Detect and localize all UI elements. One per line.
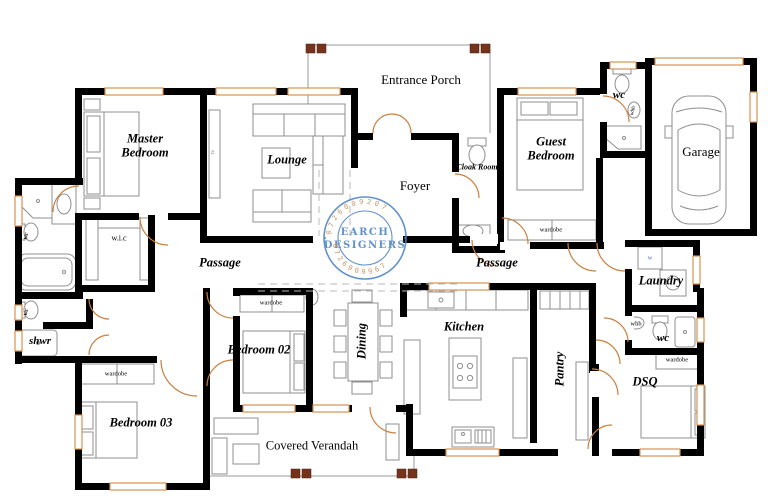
guest-wc-fixtures (604, 66, 641, 149)
stamp-dot-left: • (324, 234, 327, 243)
stamp-line1: EARCH (341, 227, 390, 238)
bedroom03-furniture (78, 364, 154, 458)
verandah-furniture (212, 418, 399, 474)
master-ensuite-fixtures (17, 184, 76, 290)
designer-stamp: EARCH DESIGNERS 0726009207 0726009967 • … (324, 197, 407, 279)
dsq-furniture (641, 351, 705, 438)
garage-car (665, 96, 733, 224)
guest-bed (508, 98, 596, 240)
verandah-columns (291, 469, 417, 478)
cloak-room-fixtures (456, 138, 490, 238)
lounge-furniture (209, 104, 345, 222)
dining-set (334, 290, 392, 394)
laundry-machines (638, 247, 686, 296)
pantry-shelves (540, 291, 589, 440)
master-bed (84, 99, 139, 209)
kitchen-counters (404, 290, 528, 447)
stamp-dot-right: • (404, 234, 407, 243)
floor-plan-canvas: EARCH DESIGNERS 0726009207 0726009967 • … (0, 0, 768, 503)
east-wc-fixtures (628, 316, 695, 347)
floor-plan: EARCH DESIGNERS 0726009207 0726009967 • … (0, 0, 768, 503)
